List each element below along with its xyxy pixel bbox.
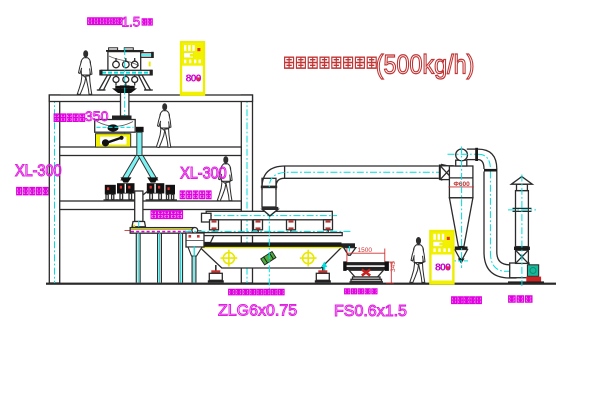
svg-text:XL-300: XL-300	[15, 162, 62, 180]
svg-text:345: 345	[390, 261, 397, 272]
svg-text:(500kg/h): (500kg/h)	[376, 50, 475, 80]
svg-text:1.5: 1.5	[122, 15, 141, 30]
svg-text:FS0.6x1.5: FS0.6x1.5	[334, 303, 407, 320]
svg-text:ZLG6x0.75: ZLG6x0.75	[218, 303, 297, 320]
svg-text:1500: 1500	[358, 247, 373, 254]
svg-text:350: 350	[85, 108, 109, 124]
svg-text:XL-300: XL-300	[180, 164, 227, 182]
